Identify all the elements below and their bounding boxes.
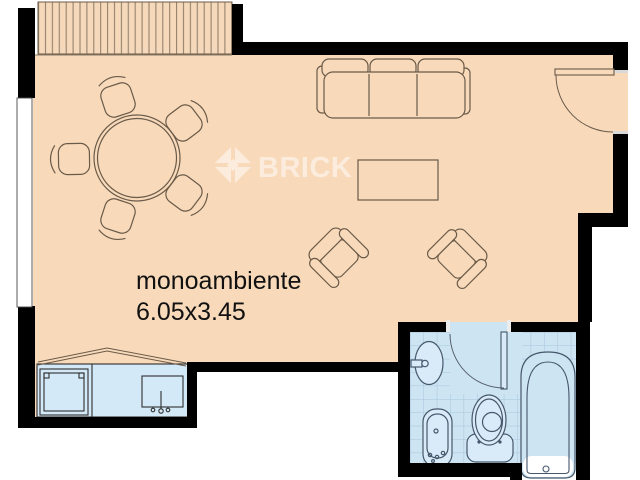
room-label: monoambiente — [136, 267, 301, 295]
bidet — [423, 409, 452, 467]
kitchenette — [37, 364, 190, 417]
bathroom — [410, 322, 577, 478]
wall-segment — [613, 131, 628, 213]
floor-plan-page: BRICK monoambiente 6.05x3.45 — [0, 0, 640, 480]
wall-segment — [232, 4, 243, 42]
wall-segment — [18, 8, 35, 98]
wall-segment — [18, 306, 35, 428]
coffee-table — [358, 160, 438, 200]
door-jamb — [613, 70, 628, 73]
wall-segment — [576, 322, 590, 480]
wall-segment — [18, 417, 197, 428]
door-jamb — [446, 320, 450, 332]
entry-threshold — [613, 73, 628, 131]
wall-segment — [232, 42, 628, 55]
bathtub — [521, 352, 575, 478]
wall-segment — [507, 322, 576, 332]
dining-table — [94, 115, 180, 201]
wall-segment — [398, 322, 410, 477]
wall-segment — [187, 362, 398, 372]
left-window — [17, 98, 32, 307]
wall-segment — [578, 213, 628, 227]
room-dimensions: 6.05x3.45 — [136, 298, 246, 326]
drain — [543, 466, 549, 472]
door-leaf — [555, 69, 614, 75]
floor-plan: BRICK monoambiente 6.05x3.45 — [0, 0, 640, 480]
wall-segment — [578, 227, 592, 322]
door-jamb — [507, 320, 511, 332]
brand-name: BRICK — [258, 152, 352, 184]
wall-segment — [510, 463, 522, 480]
door-leaf — [501, 332, 507, 389]
sofa — [317, 59, 470, 118]
bathroom-threshold — [450, 322, 507, 332]
door-jamb — [613, 131, 628, 134]
balcony-deck — [38, 2, 232, 54]
wall-segment — [398, 463, 512, 477]
toilet — [472, 395, 506, 445]
brand-watermark: BRICK — [215, 147, 352, 184]
